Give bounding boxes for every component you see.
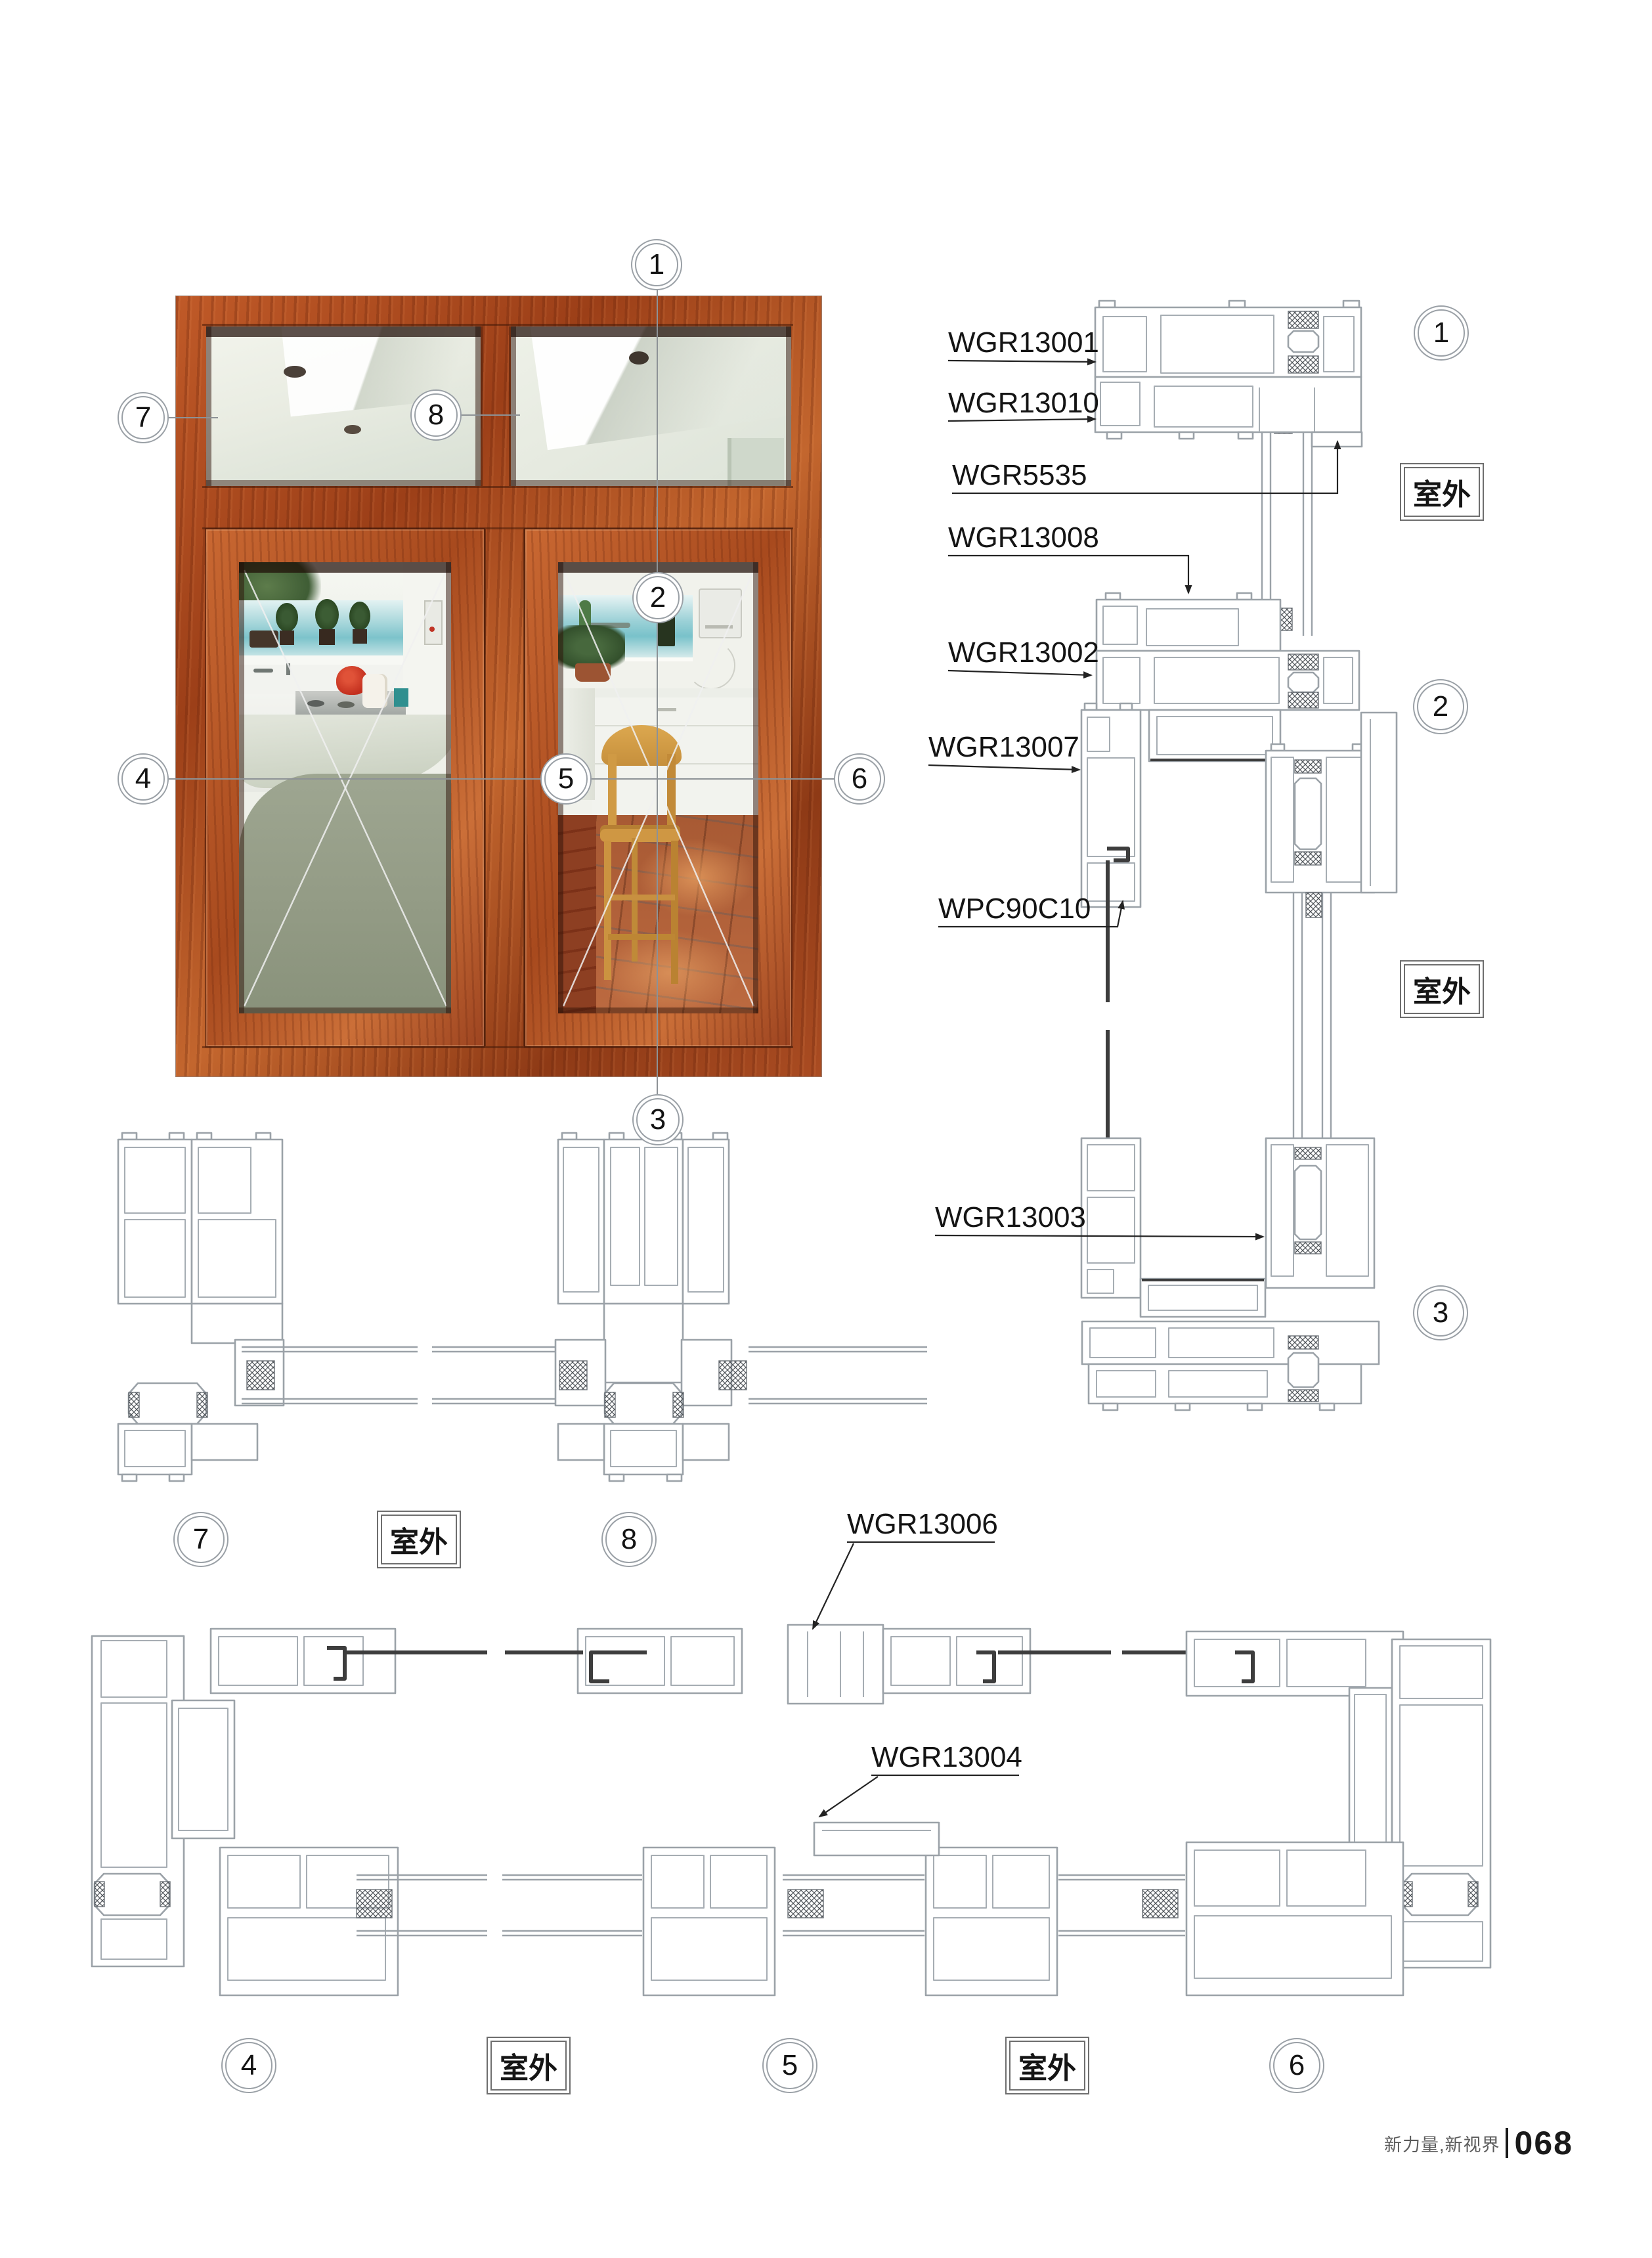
transom-pane-right: [511, 326, 791, 486]
frame-seam: [202, 486, 793, 488]
callout-6-section: 6: [1269, 2038, 1324, 2093]
callout-3-photo: 3: [632, 1094, 684, 1145]
callout-7-section: 7: [173, 1512, 228, 1567]
section-5-detail: [505, 1625, 1235, 1995]
label-wgr13002: WGR13002: [948, 636, 1099, 669]
vertical-section-drawing-7-8: [92, 1123, 1011, 1504]
frame-seam: [202, 1046, 793, 1048]
vertical-section-drawing-1-2-3: [1077, 289, 1405, 1419]
callout-5-section: 5: [762, 2038, 817, 2093]
label-wgr13004: WGR13004: [871, 1741, 1022, 1774]
label-wgr13007: WGR13007: [928, 731, 1079, 764]
label-wgr13006: WGR13006: [847, 1508, 998, 1541]
ceiling-vent-dot: [629, 351, 649, 365]
callout-2-photo: 2: [632, 572, 684, 623]
sill-section-detail: [1081, 1138, 1379, 1410]
window-photo: [176, 296, 821, 1076]
label-wgr13001: WGR13001: [948, 326, 1099, 359]
label-wgr13003: WGR13003: [935, 1201, 1086, 1234]
ceiling-light-dot: [344, 425, 361, 434]
skylight-wedge: [529, 326, 791, 450]
outdoor-box-2: 室外: [1400, 960, 1484, 1018]
frame-seam: [509, 326, 511, 486]
outdoor-box-3: 室外: [377, 1511, 461, 1568]
label-wpc90c10: WPC90C10: [938, 893, 1091, 925]
frame-seam: [484, 529, 486, 1046]
head-section-detail: [1095, 301, 1362, 447]
frame-seam: [523, 529, 525, 1046]
label-wgr5535: WGR5535: [952, 459, 1087, 492]
glazing-unit: [1293, 893, 1331, 1162]
footer-brand: 新力量,新视界: [1384, 2131, 1500, 2156]
section-4-detail: [92, 1629, 487, 1995]
callout-4-photo: 4: [118, 753, 169, 805]
left-sash-glass: [239, 562, 451, 1013]
catalog-page: 1 2 3 4 5 6 7 8 1 2 3 7 8 4 5 6 室外 室外 室外…: [0, 0, 1652, 2258]
section-7-detail: [118, 1133, 284, 1481]
callout-8-photo: 8: [410, 389, 462, 441]
ceiling-light-dot: [284, 366, 306, 378]
outdoor-box-4: 室外: [487, 2037, 571, 2094]
section-8-detail: [555, 1133, 747, 1481]
callout-4-section: 4: [221, 2038, 276, 2093]
label-wgr13010: WGR13010: [948, 387, 1099, 420]
footer-page-number: 068: [1515, 2124, 1573, 2162]
plan-section-drawing-4-5-6: [66, 1596, 1596, 2003]
left-sash: [206, 529, 484, 1046]
callout-8-section: 8: [601, 1512, 657, 1567]
transom-section-detail: [1081, 593, 1397, 1193]
callout-3-section: 3: [1413, 1285, 1468, 1340]
callout-7-photo: 7: [118, 392, 169, 443]
door-frame: [728, 438, 784, 486]
callout-1-photo: 1: [631, 239, 682, 290]
frame-seam: [481, 326, 483, 486]
footer-divider: [1506, 2128, 1508, 2158]
outdoor-box-1: 室外: [1400, 463, 1484, 521]
callout-6-photo: 6: [834, 753, 885, 805]
label-wgr13008: WGR13008: [948, 521, 1099, 554]
callout-2-section: 2: [1413, 679, 1468, 734]
frame-seam: [202, 324, 793, 326]
open-direction-lines: [239, 562, 451, 1013]
outdoor-box-5: 室外: [1005, 2037, 1089, 2094]
callout-5-photo: 5: [540, 753, 592, 805]
page-footer: 新力量,新视界 068: [1384, 2124, 1573, 2162]
callout-1-section: 1: [1414, 305, 1469, 361]
section-6-detail: [1186, 1631, 1490, 1995]
